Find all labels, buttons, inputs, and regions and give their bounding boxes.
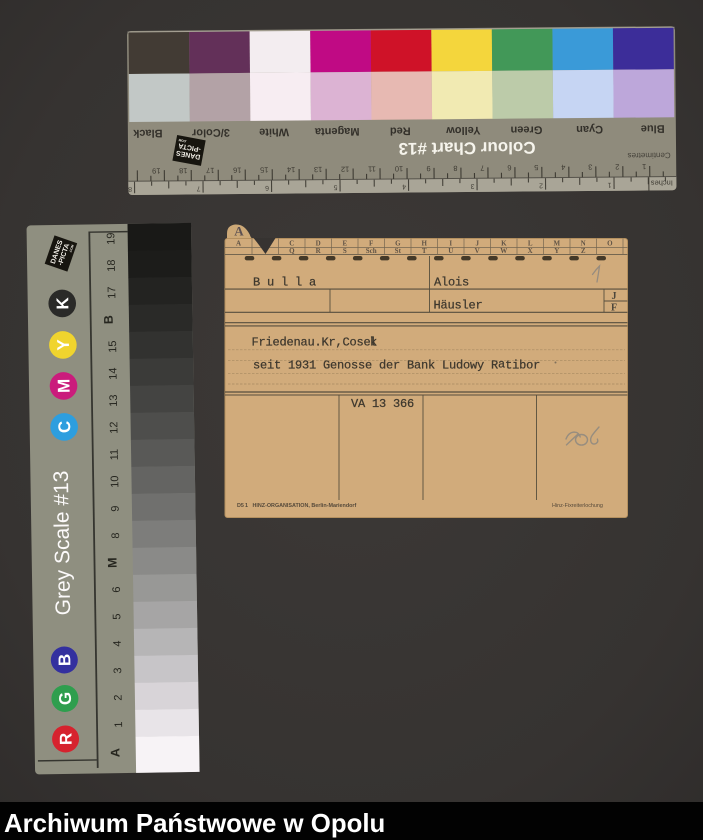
svg-text:Y: Y [54, 338, 73, 350]
svg-text:Yellow: Yellow [446, 124, 481, 136]
svg-text:9: 9 [426, 164, 430, 173]
svg-text:Green: Green [510, 123, 542, 135]
svg-text:M: M [54, 379, 73, 393]
svg-text:A: A [236, 240, 241, 248]
svg-text:Y: Y [554, 247, 559, 255]
svg-text:18: 18 [179, 166, 187, 175]
svg-text:Alois: Alois [434, 276, 469, 290]
svg-text:17: 17 [206, 166, 214, 175]
svg-text:G: G [56, 692, 75, 706]
svg-text:Q: Q [289, 247, 295, 255]
svg-text:Sch: Sch [366, 247, 377, 255]
svg-text:4: 4 [561, 163, 565, 172]
svg-text:9: 9 [110, 505, 122, 511]
svg-text:8: 8 [110, 532, 122, 538]
svg-text:1: 1 [607, 181, 611, 188]
svg-text:13: 13 [108, 394, 120, 406]
svg-text:5: 5 [333, 183, 337, 190]
svg-text:6: 6 [265, 184, 269, 191]
svg-text:B: B [55, 654, 74, 667]
svg-text:14: 14 [287, 165, 295, 174]
svg-text:Blue: Blue [641, 122, 665, 134]
svg-text:White: White [259, 126, 289, 138]
svg-text:2: 2 [539, 181, 543, 188]
svg-text:F: F [611, 302, 617, 313]
svg-text:5: 5 [111, 613, 123, 619]
svg-text:2: 2 [113, 694, 125, 700]
svg-text:Grey Scale #13: Grey Scale #13 [50, 470, 75, 615]
svg-text:Centimetres: Centimetres [628, 151, 671, 160]
svg-text:Black: Black [132, 127, 162, 139]
svg-text:Z: Z [581, 247, 586, 255]
svg-text:R: R [56, 733, 75, 746]
svg-text:Magenta: Magenta [314, 125, 360, 137]
svg-text:J: J [612, 291, 617, 302]
svg-text:4: 4 [402, 183, 406, 190]
svg-text:Inches: Inches [651, 178, 673, 187]
svg-text:C: C [55, 421, 74, 434]
svg-text:15: 15 [260, 165, 268, 174]
svg-text:St: St [395, 247, 402, 255]
svg-text:6: 6 [507, 163, 511, 172]
svg-text:K: K [53, 296, 72, 309]
svg-text:10: 10 [395, 164, 403, 173]
svg-text:M: M [105, 557, 119, 568]
svg-text:X: X [528, 247, 533, 255]
svg-text:5: 5 [534, 163, 538, 172]
svg-text:7: 7 [480, 163, 484, 172]
svg-text:Archiwum Państwowe w Opolu: Archiwum Państwowe w Opolu [4, 810, 385, 838]
svg-text:Colour Chart #13: Colour Chart #13 [398, 138, 535, 158]
svg-text:12: 12 [341, 165, 349, 174]
svg-text:7: 7 [196, 184, 200, 191]
svg-text:B: B [102, 315, 116, 324]
svg-text:T: T [422, 247, 427, 255]
svg-text:O: O [607, 240, 613, 248]
svg-text:Red: Red [390, 125, 411, 137]
svg-text:1: 1 [642, 162, 646, 171]
svg-text:6: 6 [111, 586, 123, 592]
svg-text:16: 16 [233, 166, 241, 175]
svg-text:2: 2 [615, 162, 619, 171]
svg-text:VA 13 366: VA 13 366 [351, 397, 414, 411]
svg-text:1: 1 [113, 721, 125, 727]
svg-text:18: 18 [106, 259, 118, 271]
svg-text:3/Color: 3/Color [191, 126, 230, 138]
svg-text:13: 13 [314, 165, 322, 174]
svg-text:8: 8 [453, 164, 457, 173]
svg-text:A: A [108, 748, 122, 757]
svg-text:W: W [500, 247, 507, 255]
svg-text:U: U [448, 247, 453, 255]
svg-text:15: 15 [107, 340, 119, 352]
svg-text:14: 14 [107, 367, 119, 379]
svg-text:11: 11 [109, 449, 121, 461]
svg-text:1 HINZ-ORGANISATION, Berlin-: 1 HINZ-ORGANISATION, Berlin-Mariendorf [245, 503, 357, 509]
svg-text:D5: D5 [237, 503, 244, 509]
svg-text:A: A [234, 224, 244, 239]
svg-text:Cyan: Cyan [576, 123, 603, 135]
svg-text:S: S [343, 247, 347, 255]
svg-text:12: 12 [108, 421, 120, 433]
svg-text:19: 19 [105, 232, 117, 244]
svg-text:17: 17 [106, 286, 118, 298]
svg-text:B u l l a: B u l l a [253, 275, 316, 289]
svg-text:seit 1931 Genosse der Bank Lud: seit 1931 Genosse der Bank Ludowy Ratibo… [253, 357, 540, 372]
svg-text:Hinz-Fixreiterlochung: Hinz-Fixreiterlochung [552, 503, 603, 509]
svg-text:3: 3 [588, 163, 592, 172]
svg-text:8: 8 [128, 185, 132, 192]
svg-text:10: 10 [109, 475, 121, 487]
svg-text:11: 11 [368, 164, 376, 173]
svg-text:3: 3 [112, 667, 124, 673]
svg-text:Häusler: Häusler [434, 299, 483, 313]
svg-text:19: 19 [152, 166, 160, 175]
svg-text:3: 3 [470, 182, 474, 189]
svg-text:Friedenau.Kr,Coselk: Friedenau.Kr,Coselk [252, 335, 378, 349]
svg-text:V: V [475, 247, 480, 255]
svg-text:4: 4 [112, 640, 124, 646]
